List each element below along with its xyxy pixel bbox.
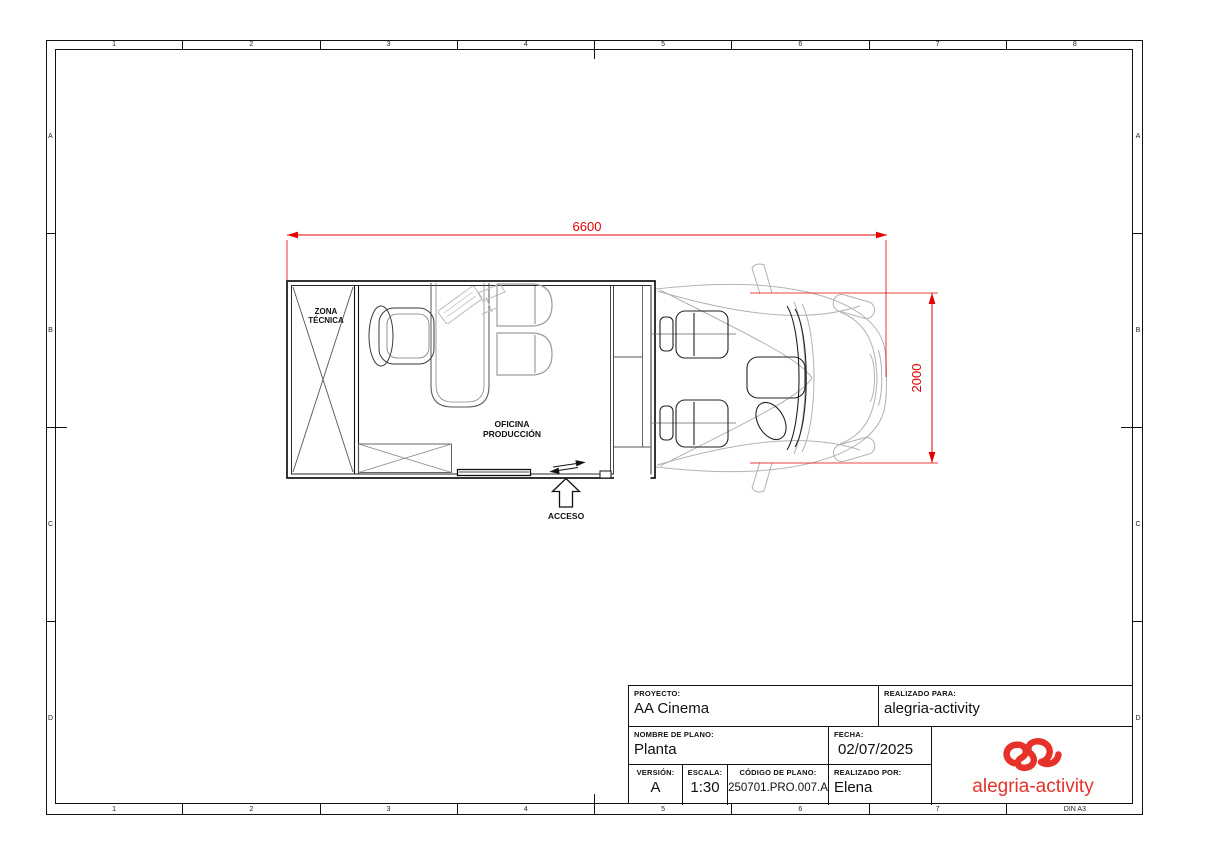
titleblock-cell-realizado-para: REALIZADO PARA: alegria-activity — [879, 686, 1133, 727]
realizado-para-label: REALIZADO PARA: — [879, 686, 1133, 698]
sliding-door-arrows — [551, 461, 584, 473]
titleblock-cell-nombre-plano: NOMBRE DE PLANO: Planta — [629, 727, 829, 765]
fecha-value: 02/07/2025 — [829, 739, 931, 758]
titleblock-cell-version: VERSIÓN: A — [629, 765, 683, 805]
dimension-length-label: 6600 — [573, 219, 602, 234]
mirror-left-icon — [752, 264, 772, 294]
office-chair — [369, 306, 434, 366]
acceso-label: ACCESO — [548, 511, 585, 521]
version-label: VERSIÓN: — [629, 765, 682, 777]
fecha-label: FECHA: — [829, 727, 931, 739]
titleblock-cell-escala: ESCALA: 1:30 — [683, 765, 728, 805]
realizado-por-label: REALIZADO POR: — [829, 765, 931, 777]
proyecto-value: AA Cinema — [629, 698, 878, 717]
escala-value: 1:30 — [683, 777, 727, 796]
titleblock-cell-codigo: CÓDIGO DE PLANO: 250701.PRO.007.A — [728, 765, 829, 805]
laptop-icon — [437, 284, 505, 324]
box-body — [287, 281, 655, 478]
nombre-plano-label: NOMBRE DE PLANO: — [629, 727, 828, 739]
dimension-width-label: 2000 — [909, 364, 924, 393]
version-value: A — [629, 777, 682, 796]
doorway-gap — [614, 467, 651, 481]
titleblock-cell-proyecto: PROYECTO: AA Cinema — [629, 686, 879, 727]
title-block: PROYECTO: AA Cinema REALIZADO PARA: aleg… — [628, 685, 1133, 804]
zona-tecnica-label-line2: TÉCNICA — [308, 316, 344, 325]
guest-chairs — [497, 284, 552, 375]
nombre-plano-value: Planta — [629, 739, 828, 758]
steering-wheel-icon — [750, 397, 793, 445]
mirror-right-icon — [752, 462, 772, 492]
codigo-plano-label: CÓDIGO DE PLANO: — [728, 765, 828, 777]
acceso-arrow — [553, 479, 580, 508]
codigo-plano-value: 250701.PRO.007.A — [728, 777, 828, 794]
oficina-label-line1: OFICINA — [495, 419, 530, 429]
logo-cell: alegria-activity — [932, 727, 1134, 805]
storage-cross-box — [359, 444, 452, 473]
zona-tecnica-label-line1: ZONA — [315, 307, 338, 316]
logo-wordmark: alegria-activity — [972, 776, 1093, 798]
titleblock-cell-fecha: FECHA: 02/07/2025 — [829, 727, 932, 765]
cab-interior — [652, 306, 806, 450]
alegria-activity-logo-mark — [997, 735, 1069, 775]
titleblock-cell-realizado-por: REALIZADO POR: Elena — [829, 765, 932, 805]
dimension-length — [287, 232, 887, 377]
realizado-por-value: Elena — [829, 777, 931, 796]
truck-cab — [656, 264, 887, 492]
escala-label: ESCALA: — [683, 765, 727, 777]
oficina-label-line2: PRODUCCIÓN — [483, 428, 541, 439]
realizado-para-value: alegria-activity — [879, 698, 1133, 717]
proyecto-label: PROYECTO: — [629, 686, 878, 698]
